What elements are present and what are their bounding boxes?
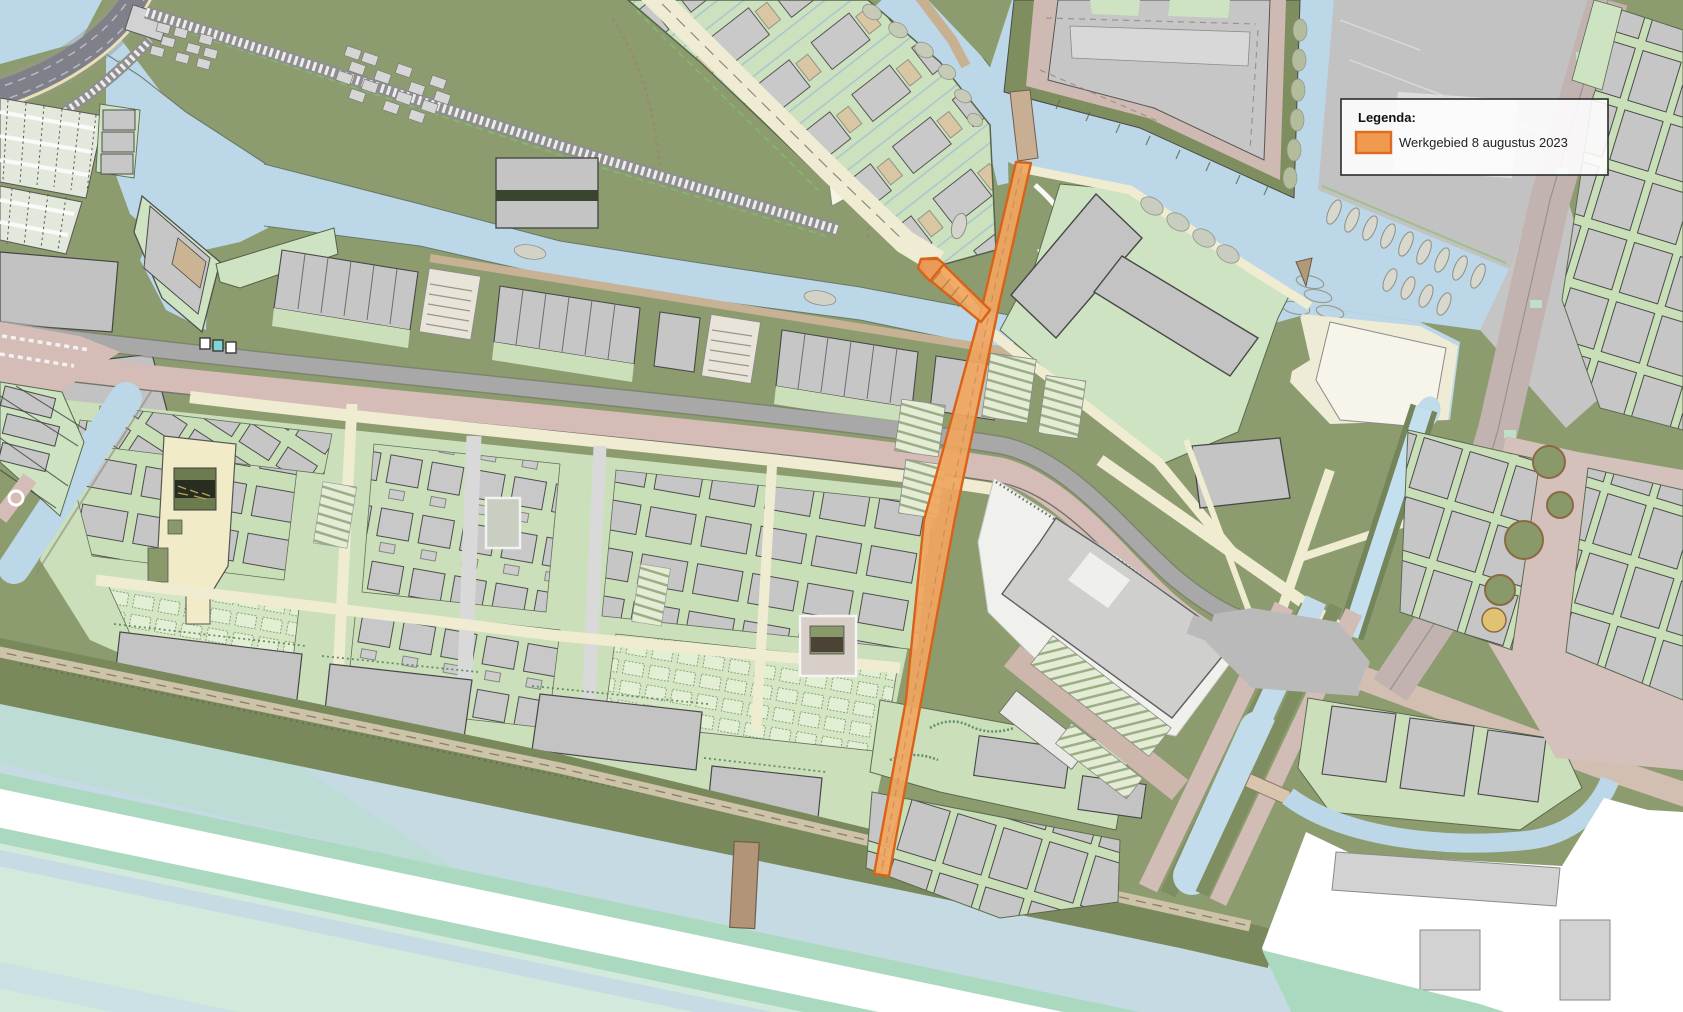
svg-text:Legenda:: Legenda:	[1358, 110, 1416, 125]
svg-text:Werkgebied 8 augustus 2023: Werkgebied 8 augustus 2023	[1399, 135, 1568, 150]
